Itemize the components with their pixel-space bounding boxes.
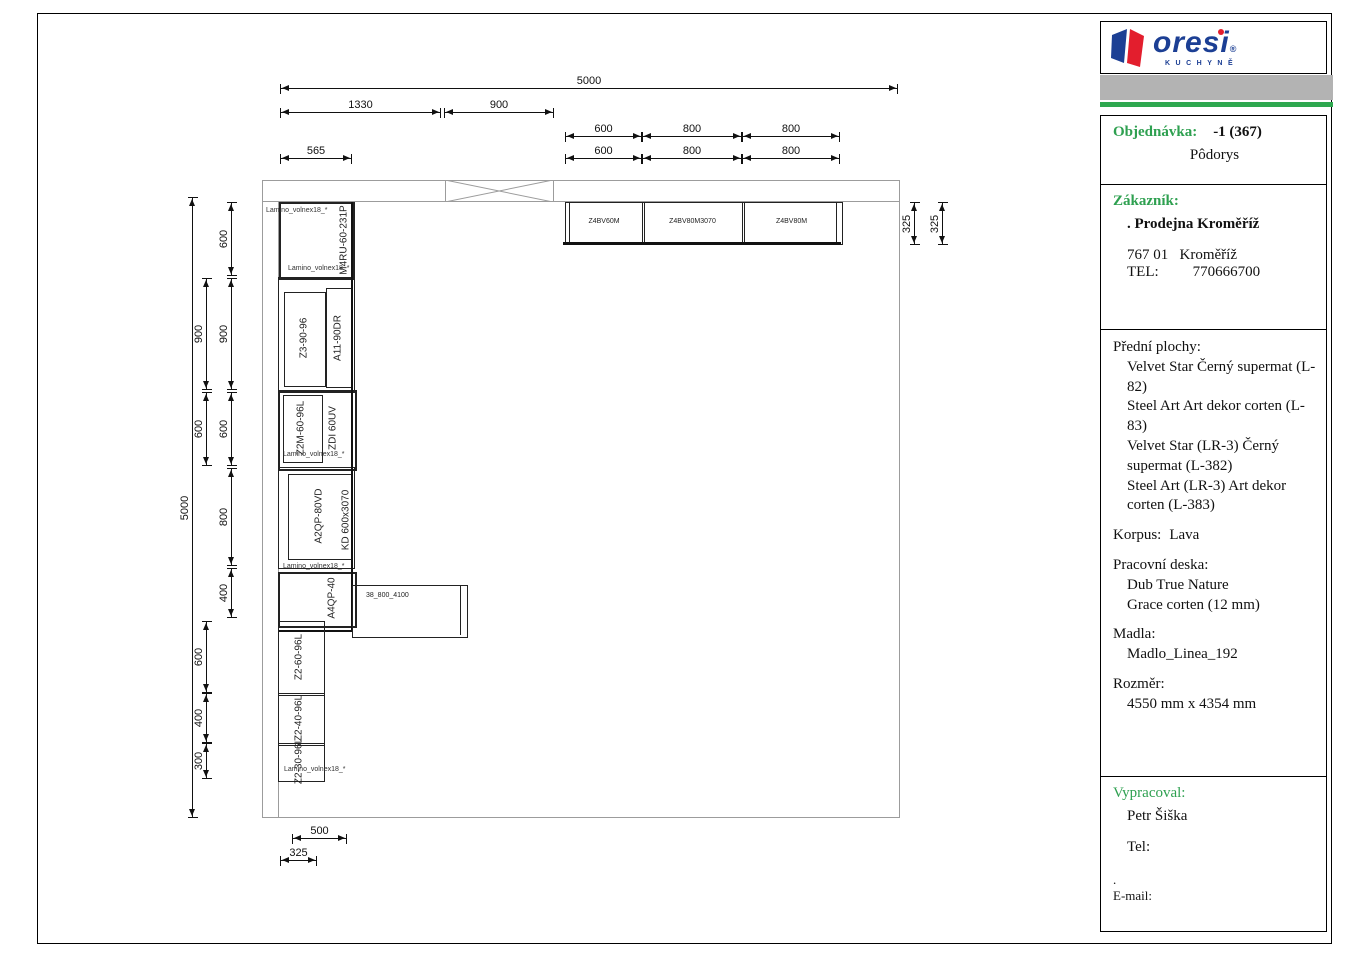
korpus-row: Korpus: Lava [1113, 526, 1316, 546]
wall-cabinet-bold-bottom [563, 242, 841, 245]
author-label: Vypracoval: [1113, 785, 1316, 802]
wall-top-outer [262, 180, 900, 181]
gray-bar [1100, 75, 1333, 100]
cabinet-label-z2m: Z2M-60-96L [296, 401, 307, 455]
wall-cabinet-label-600: Z4BV60M [565, 218, 643, 225]
dim-800b-row1: 800 [742, 136, 840, 137]
wall-bottom [262, 817, 900, 818]
dim-600-row1: 600 [565, 136, 642, 137]
dim-500-bottom: 500 [292, 838, 347, 839]
handles-value: Madlo_Linea_192 [1127, 645, 1316, 665]
cabinet-label-lamino-top: Lamino_volnex18_* [266, 207, 328, 214]
front-item: Steel Art (LR-3) Art dekor corten (L-383… [1127, 477, 1316, 517]
materials-box: Přední plochy: Velvet Star Černý superma… [1100, 329, 1327, 777]
cabinet-label-a2qp: A2QP-80VD [314, 488, 325, 543]
island-label: 38_800_4100 [366, 592, 409, 599]
order-value: -1 (367) [1213, 124, 1262, 141]
cabinet-label-lamino-5: Lamino_volnex18_* [284, 766, 346, 773]
window-x-icon [445, 180, 553, 202]
wall-right [899, 180, 900, 818]
size-label: Rozměr: [1113, 675, 1316, 695]
dim-325-right-a: 325 [914, 202, 915, 245]
island-double-edge [460, 586, 461, 635]
front-item: Steel Art Art dekor corten (L-83) [1127, 397, 1316, 437]
floorplan-sheet: 5000 1330 900 600 800 800 565 600 800 80… [0, 0, 1351, 955]
korpus-value: Lava [1169, 526, 1199, 546]
customer-label: Zákazník: [1113, 193, 1316, 210]
cabinet-label-a4qp: A4QP-40 [327, 577, 338, 618]
cabinet-label-z3: Z3-90-96 [299, 318, 310, 359]
customer-box: Zákazník: . Prodejna Kroměříž 767 01 Kro… [1100, 184, 1327, 330]
dim-800b-row2: 800 [742, 158, 840, 159]
logo-subtitle: KUCHYNĚ [1165, 60, 1238, 67]
wall-left-outer [262, 180, 263, 818]
author-name: Petr Šiška [1127, 808, 1316, 825]
wall-cabinet-label-800b: Z4BV80M [742, 218, 841, 225]
front-item: Velvet Star Černý supermat (L-82) [1127, 358, 1316, 398]
registered-mark: ® [1230, 44, 1238, 54]
cabinet-label-lamino-3: Lamino_volnex18_* [283, 451, 345, 458]
dim-325-bottom: 325 [280, 860, 317, 861]
order-box: Objednávka: -1 (367) Pôdorys [1100, 115, 1327, 185]
dim-900-inner: 900 [231, 278, 232, 390]
order-label: Objednávka: [1113, 124, 1197, 141]
cabinet-label-lamino-4: Lamino_volnex18_* [283, 563, 345, 570]
order-row: Objednávka: -1 (367) [1113, 124, 1316, 141]
size-value: 4550 mm x 4354 mm [1127, 695, 1316, 715]
front-item: Velvet Star (LR-3) Černý supermat (L-382… [1127, 437, 1316, 477]
logo-text: oresi® KUCHYNĚ [1153, 28, 1238, 67]
worktop-item: Dub True Nature [1127, 576, 1316, 596]
cabinet-bold-edge-v [351, 202, 353, 632]
author-dot: . [1113, 872, 1316, 888]
green-bar [1100, 102, 1333, 107]
cabinet-label-z230: Z2-30-96L [294, 738, 305, 784]
dim-600-row2: 600 [565, 158, 642, 159]
dim-600-left-lower: 600 [206, 621, 207, 693]
handles-label: Madla: [1113, 625, 1316, 645]
customer-zip-city: 767 01 Kroměříž [1127, 247, 1316, 264]
customer-tel-value: 770666700 [1193, 264, 1261, 281]
fronts-label: Přední plochy: [1113, 338, 1316, 358]
dim-total-width: 5000 [280, 88, 898, 89]
logo-brand: oresi® [1153, 28, 1238, 58]
customer-tel-row: TEL: 770666700 [1127, 264, 1316, 281]
cabinet-label-lamino-2: Lamino_volnex18_* [288, 265, 350, 272]
dim-600-inner-mid: 600 [231, 392, 232, 466]
dim-300-left-lower: 300 [206, 743, 207, 779]
dim-900-top: 900 [444, 112, 554, 113]
cabinet-section-400 [278, 572, 357, 628]
dim-600-inner-top: 600 [231, 202, 232, 276]
dim-400-left-lower: 400 [206, 693, 207, 743]
dim-565: 565 [280, 158, 352, 159]
dim-800a-row2: 800 [642, 158, 742, 159]
cabinet-label-z240: Z2-40-96L [294, 695, 305, 741]
korpus-label: Korpus: [1113, 526, 1161, 546]
worktop-item: Grace corten (12 mm) [1127, 596, 1316, 616]
dim-900-left-outer: 900 [206, 278, 207, 390]
customer-name: . Prodejna Kroměříž [1127, 216, 1316, 233]
window-right-edge [553, 180, 554, 202]
worktop-label: Pracovní deska: [1113, 556, 1316, 576]
dim-600-left-outer: 600 [206, 392, 207, 466]
oresi-logo-icon [1111, 29, 1145, 67]
cabinet-label-zdi: ZDI 60UV [328, 406, 339, 450]
author-tel-label: Tel: [1127, 839, 1316, 856]
dim-325-right-b: 325 [942, 202, 943, 245]
author-box: Vypracoval: Petr Šiška Tel: . E-mail: [1100, 776, 1327, 932]
logo-box: oresi® KUCHYNĚ [1100, 21, 1327, 74]
dim-800-inner: 800 [231, 468, 232, 566]
sheet-title: Pôdorys [1113, 147, 1316, 164]
wall-cabinet-label-800a: Z4BV80M3070 [642, 218, 743, 225]
author-email-label: E-mail: [1113, 888, 1316, 904]
dim-400-inner: 400 [231, 568, 232, 618]
dim-1330: 1330 [280, 112, 441, 113]
cabinet-label-z260: Z2-60-96L [294, 634, 305, 680]
dim-800a-row1: 800 [642, 136, 742, 137]
cabinet-label-a11: A11-90DR [333, 315, 344, 361]
customer-tel-label: TEL: [1127, 264, 1159, 281]
